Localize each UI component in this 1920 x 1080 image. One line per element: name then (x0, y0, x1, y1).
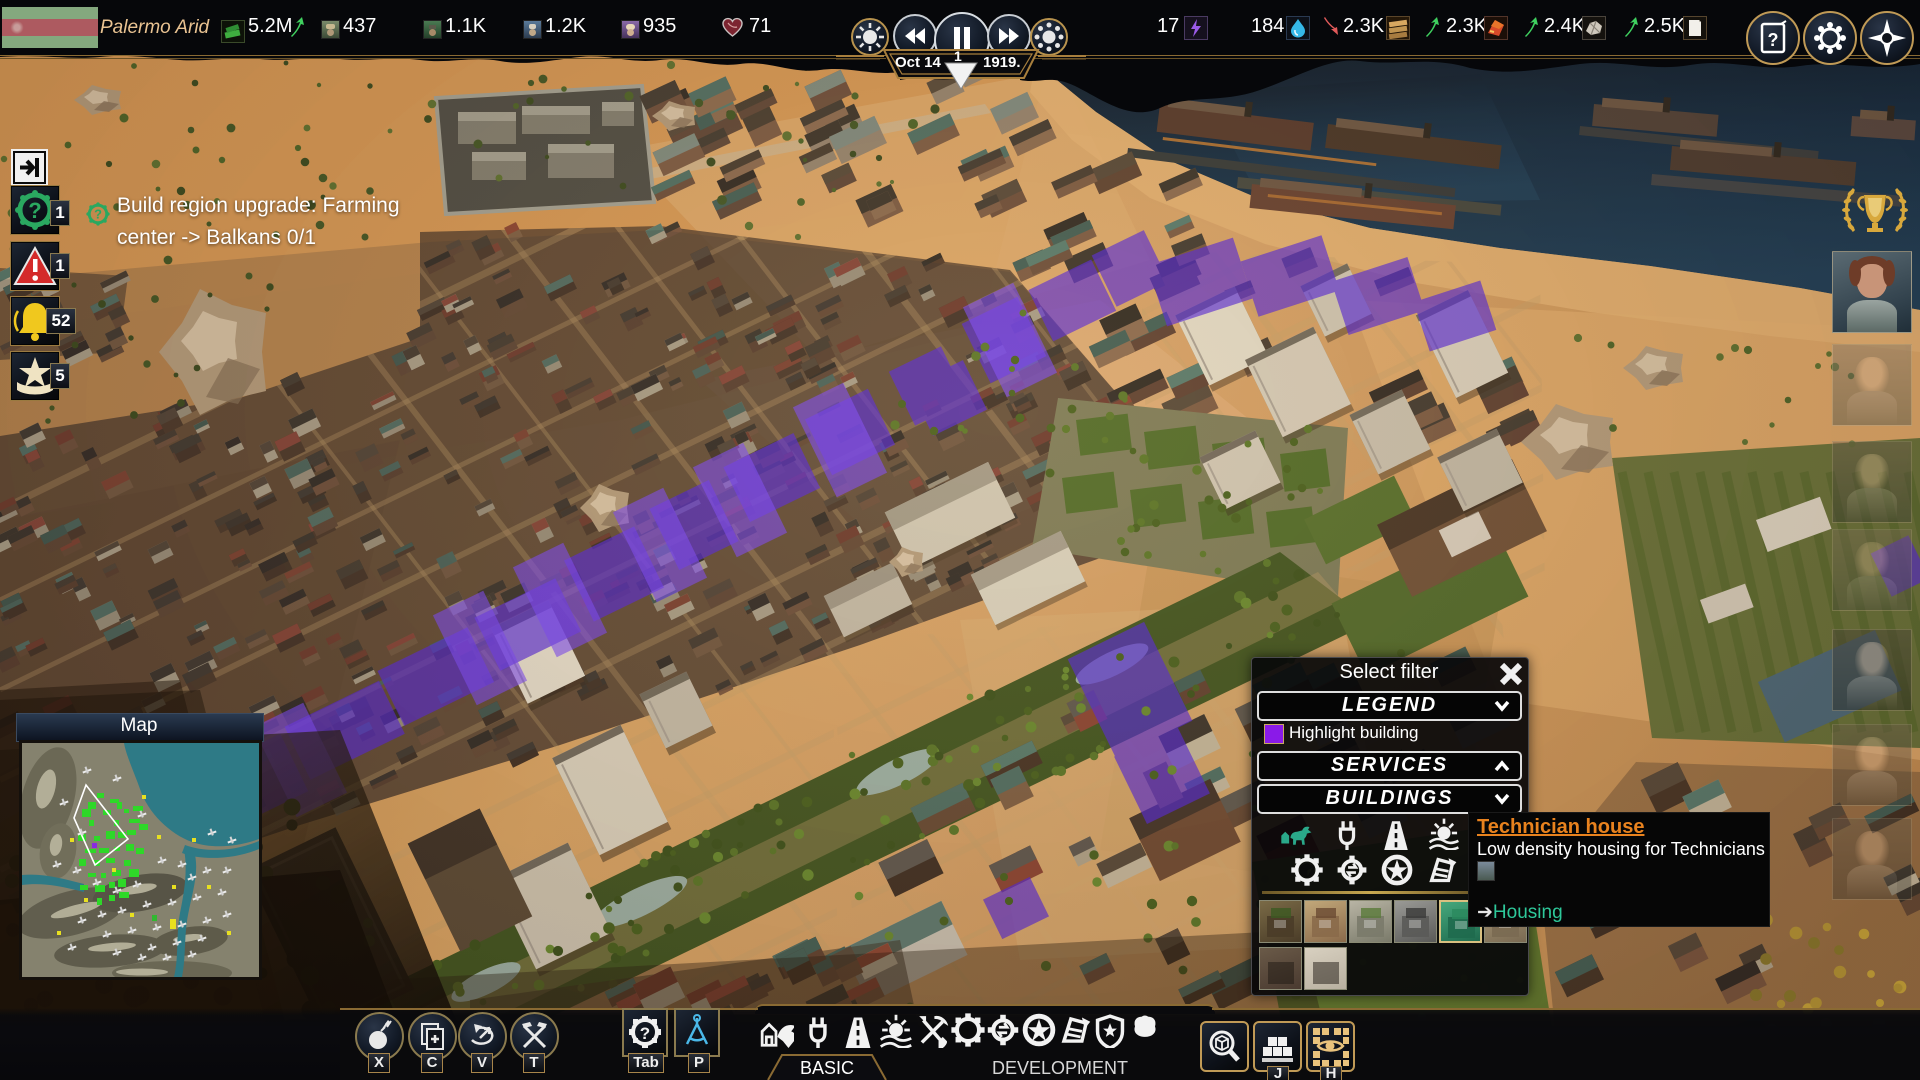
svg-text:?: ? (28, 198, 41, 223)
svg-text:?: ? (94, 207, 102, 222)
svg-text:?: ? (1768, 30, 1779, 50)
svg-text:?: ? (640, 1024, 650, 1043)
